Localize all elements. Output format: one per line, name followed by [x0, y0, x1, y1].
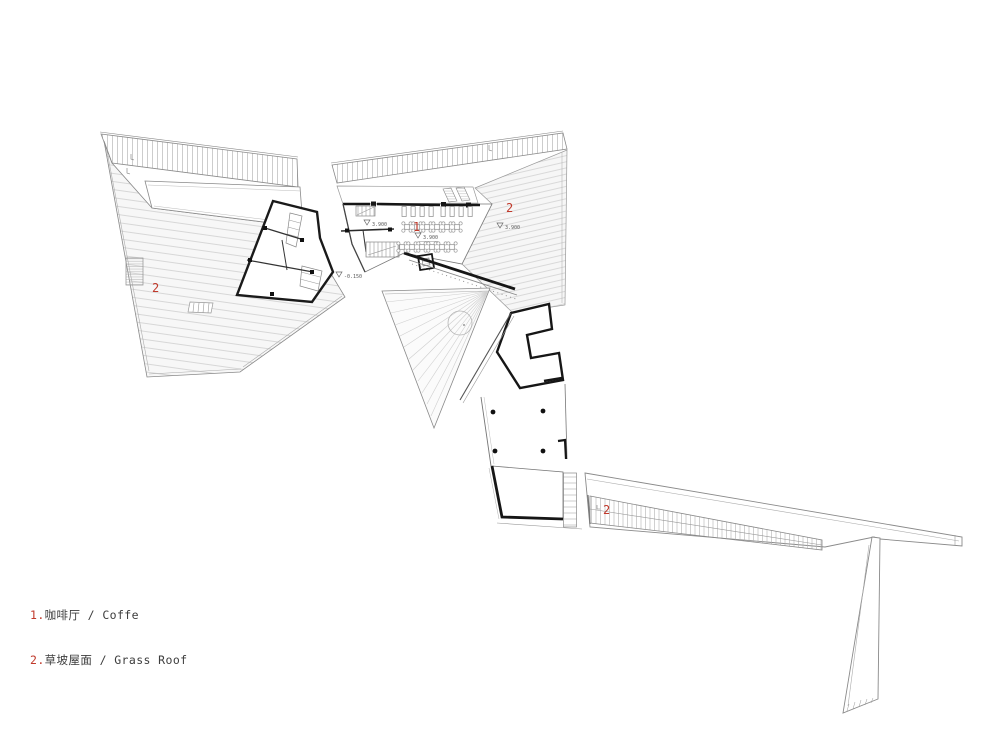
table	[435, 225, 440, 230]
section-tick	[127, 168, 130, 174]
table	[410, 245, 415, 250]
chair	[397, 249, 400, 252]
table	[440, 245, 445, 250]
bench	[450, 207, 454, 217]
bench	[411, 207, 415, 217]
lower-room-stair	[564, 473, 577, 527]
table	[420, 245, 425, 250]
elevation-value: -0.150	[344, 274, 362, 280]
table	[445, 225, 450, 230]
bench	[429, 207, 433, 217]
chair	[417, 249, 420, 252]
chair	[452, 222, 455, 225]
table	[425, 225, 430, 230]
column	[541, 449, 546, 454]
chair	[447, 242, 450, 245]
elevation-triangle	[336, 272, 342, 277]
label-coffee-area: 1	[413, 220, 420, 234]
chair	[397, 242, 400, 245]
chair	[437, 249, 440, 252]
chair	[417, 242, 420, 245]
chair	[432, 229, 435, 232]
bench	[441, 207, 445, 217]
column	[491, 410, 496, 415]
legend-num-1: 1.	[30, 608, 45, 622]
legend-item-grass-roof: 2.草坡屋面 / Grass Roof	[30, 653, 187, 668]
column	[493, 449, 498, 454]
table	[405, 225, 410, 230]
long-arm-roof	[585, 473, 962, 713]
terrace-corridor	[481, 378, 582, 529]
label-grass-roof-arm: 2	[603, 503, 610, 517]
column	[541, 409, 546, 414]
angular-room-walls	[497, 304, 563, 388]
bench	[420, 207, 424, 217]
table	[400, 245, 405, 250]
bench	[402, 207, 406, 217]
left-wing-roof	[100, 132, 345, 377]
cafe-stair-2	[366, 242, 399, 257]
roof-grille	[126, 258, 143, 285]
chair	[447, 249, 450, 252]
table	[455, 225, 460, 230]
chair	[427, 249, 430, 252]
lower-room	[492, 466, 563, 519]
terrace-columns	[491, 409, 546, 454]
chair	[454, 242, 457, 245]
label-grass-roof-right: 2	[506, 201, 513, 215]
elevation-value: 3.900	[505, 225, 520, 231]
chair	[452, 229, 455, 232]
chair	[427, 242, 430, 245]
legend-item-coffee: 1.咖啡厅 / Coffe	[30, 608, 187, 623]
legend-label-coffee: 咖啡厅 / Coffe	[45, 608, 139, 622]
chair	[422, 229, 425, 232]
legend-num-2: 2.	[30, 653, 45, 667]
chair	[454, 249, 457, 252]
cafe-building	[331, 131, 567, 313]
elevation-value: 3.900	[423, 235, 438, 241]
table	[430, 245, 435, 250]
chair	[407, 242, 410, 245]
chair	[422, 222, 425, 225]
arm-leg	[843, 537, 880, 713]
chair	[402, 222, 405, 225]
chair	[407, 249, 410, 252]
bench	[468, 207, 472, 217]
chair	[402, 229, 405, 232]
chair	[459, 229, 462, 232]
chair	[442, 229, 445, 232]
legend: 1.咖啡厅 / Coffe 2.草坡屋面 / Grass Roof	[30, 578, 187, 698]
floor-plan-page: 3.900 3.900 3.900 -0.150 2 1 2 2 1.咖啡厅 /…	[0, 0, 1000, 744]
elevation-value: 3.900	[372, 222, 387, 228]
cafe-wall	[377, 204, 440, 205]
bench	[459, 207, 463, 217]
slope-stair	[188, 302, 213, 313]
left-wing-coping-band	[101, 134, 298, 187]
chair	[459, 222, 462, 225]
label-grass-roof-left: 2	[152, 281, 159, 295]
chair	[437, 242, 440, 245]
table	[450, 245, 455, 250]
legend-label-grass-roof: 草坡屋面 / Grass Roof	[45, 653, 188, 667]
chair	[442, 222, 445, 225]
chair	[432, 222, 435, 225]
plaza-slope	[382, 288, 490, 428]
